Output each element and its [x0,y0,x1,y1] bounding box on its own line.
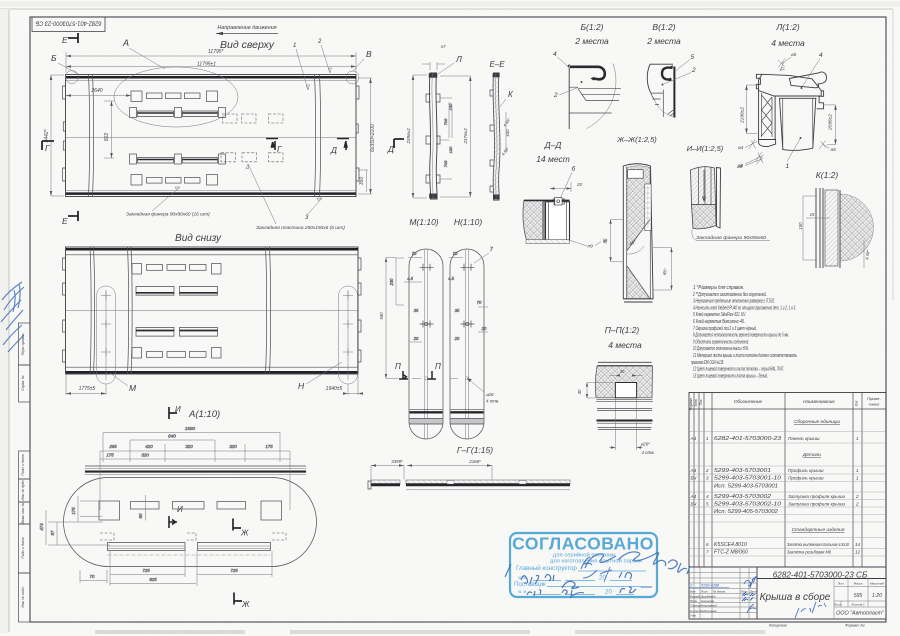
svg-text:Вид снизу: Вид снизу [175,233,222,244]
svg-text:5299-403-5703001: 5299-403-5703001 [714,468,771,474]
svg-text:595: 595 [854,593,863,599]
svg-text:60: 60 [138,513,143,518]
svg-text:6282-401-5703000-23 СБ: 6282-401-5703000-23 СБ [773,571,868,580]
svg-text:Пров.: Пров. [690,599,698,603]
svg-text:Детали: Детали [802,452,821,458]
svg-text:230: 230 [389,278,394,287]
svg-text:2: 2 [553,92,558,99]
svg-text:БЧ: БЧ [691,502,698,507]
svg-text:2 **Допускается изготовление: 2 **Допускается изготовление без скругле… [692,291,767,298]
svg-text:FTC-Z M8/060: FTC-Z M8/060 [714,550,748,556]
svg-text:2 места: 2 места [646,36,681,46]
svg-text:3 Неуказанные предельные откл: 3 Неуказанные предельные отклонения разм… [693,299,775,305]
svg-text:П: П [395,362,401,371]
svg-text:6х350=2100: 6х350=2100 [370,124,376,152]
svg-text:7: 7 [706,550,709,555]
svg-text:Подп.: Подп. [741,590,749,594]
svg-text:Формат А1: Формат А1 [845,624,865,628]
svg-text:1: 1 [856,468,859,473]
svg-text:725: 725 [230,568,238,573]
svg-text:6 Клей-герметик Виксэленс-45.: 6 Клей-герметик Виксэленс-45. [693,318,745,325]
svg-text:70: 70 [453,251,458,256]
svg-text:Поз.: Поз. [699,399,703,406]
svg-text:320: 320 [185,444,193,449]
svg-text:9 Обеспечить герметичность со: 9 Обеспечить герметичность соединений. [693,338,749,345]
svg-text:Закладная фанера 90х90х60 (16: Закладная фанера 90х90х60 (16 шт) [126,212,210,218]
svg-text:Лит.: Лит. [836,582,844,586]
svg-text:А4: А4 [690,494,697,499]
svg-text:Л(1:2): Л(1:2) [775,22,799,32]
svg-text:2: 2 [317,39,322,45]
svg-text:70: 70 [90,574,95,579]
svg-text:4 места: 4 места [771,38,805,48]
svg-text:Исп. 5299-403-5703001: Исп. 5299-403-5703001 [714,484,778,490]
svg-text:6282-401-5703000-23: 6282-401-5703000-23 [714,436,781,442]
svg-text:Утв.: Утв. [690,614,697,618]
svg-text:Заклёпка вытяжная стальная 4.8: Заклёпка вытяжная стальная 4.8х10 [787,542,850,547]
svg-text:Ж: Ж [241,600,250,609]
svg-text:Панель крыши: Панель крыши [788,436,820,441]
svg-text:Кол.: Кол. [855,400,859,406]
svg-text:Д: Д [387,144,394,154]
svg-text:20: 20 [413,336,419,341]
svg-text:Стандартные изделия: Стандартные изделия [792,527,845,533]
svg-text:А(1:10): А(1:10) [188,409,220,420]
svg-text:П: П [435,362,441,371]
svg-text:Формат: Формат [689,397,693,410]
svg-text:825: 825 [149,577,157,582]
svg-text:Подп. и дата: Подп. и дата [21,454,25,475]
svg-text:320: 320 [141,453,149,458]
svg-text:580: 580 [379,312,384,320]
svg-text:П–П(1:2): П–П(1:2) [605,325,640,335]
svg-text:1: 1 [856,436,859,441]
svg-text:5: 5 [706,502,709,507]
svg-text:Дата: Дата [749,590,758,594]
svg-text:706: 706 [443,118,448,125]
svg-text:4: 4 [819,52,823,59]
svg-text:175: 175 [71,507,76,515]
svg-text:к7: к7 [441,44,446,49]
svg-text:3399*: 3399* [391,459,403,464]
svg-text:130: 130 [448,146,453,153]
svg-text:Заглушка профиля крыши: Заглушка профиля крыши [788,502,846,507]
svg-text:2: 2 [691,67,696,74]
svg-text:Д–Д: Д–Д [544,140,562,150]
svg-text:13 Цвет лицевой поверхности л: 13 Цвет лицевой поверхности листа крыши … [693,372,768,379]
svg-text:5: 5 [691,54,695,61]
svg-text:Направление движения: Направление движения [217,25,276,31]
svg-text:Ж–Ж(1:2,5): Ж–Ж(1:2,5) [616,135,657,144]
svg-text:35: 35 [414,308,419,313]
svg-text:5 Клей-герметик SikaFlex-521: 5 Клей-герметик SikaFlex-521 UV. [693,311,746,318]
svg-text:А4: А4 [690,468,697,473]
svg-text:265: 265 [108,444,117,449]
svg-text:1: 1 [856,476,859,481]
svg-text:2: 2 [855,494,859,499]
svg-text:4 Нанесить клей Kleiberit PU4: 4 Нанесить клей Kleiberit PU40 по площад… [693,304,796,311]
svg-text:175: 175 [265,444,273,449]
svg-text:ООО "Автопласт": ООО "Автопласт" [836,611,885,617]
svg-text:7: 7 [490,247,493,253]
svg-text:⌀26: ⌀26 [486,392,494,397]
svg-text:Профиль крыши: Профиль крыши [788,476,824,481]
svg-text:5299-0288: 5299-0288 [701,584,720,588]
svg-text:Закладная пластина 250х150х6 (: Закладная пластина 250х150х6 (6 шт) [256,225,345,231]
svg-text:б: б [572,165,576,173]
svg-text:70: 70 [412,251,417,256]
svg-text:20: 20 [605,589,612,596]
svg-text:4.5: 4.5 [448,276,454,281]
svg-text:35: 35 [455,308,460,313]
svg-text:175: 175 [106,453,114,458]
svg-text:№ докум.: № докум. [713,590,726,594]
svg-text:14 мест: 14 мест [536,154,570,164]
svg-text:А4: А4 [690,436,697,441]
svg-text:706: 706 [443,160,448,167]
svg-text:4.5: 4.5 [407,276,413,281]
svg-text:« »: « » [518,589,527,596]
svg-text:474: 474 [39,523,44,531]
svg-text:2376±2: 2376±2 [463,128,468,145]
svg-text:2166*: 2166* [468,459,481,464]
svg-text:11 Материал листа крыши и лис: 11 Материал листа крыши и листа потолка … [693,353,797,359]
svg-text:12 Цвет лицевой поверхности л: 12 Цвет лицевой поверхности листа потолк… [693,366,784,373]
svg-text:2: 2 [855,502,859,507]
svg-text:Крыша в сборе: Крыша в сборе [760,591,831,603]
svg-text:840: 840 [168,434,176,439]
svg-text:420: 420 [145,444,153,449]
svg-text:для изготовления опытной парти: для изготовления опытной партии [550,558,642,565]
svg-text:2 места: 2 места [574,36,609,46]
svg-text:87: 87 [50,530,55,535]
svg-text:10 Допускается отклонение мас: 10 Допускается отклонение массы ±5%. [693,346,749,352]
svg-text:Масса: Масса [854,582,863,586]
svg-text:Насонова: Насонова [701,599,714,603]
svg-text:Наименование: Наименование [803,399,835,404]
svg-text:2: 2 [705,468,709,473]
svg-text:п9: п9 [588,244,594,250]
svg-text:Справ. №: Справ. № [21,375,25,391]
svg-text:Н: Н [298,381,305,391]
svg-text:5299-403-5703002-10: 5299-403-5703002-10 [714,502,781,508]
svg-text:8 Допускается неплоскостность: 8 Допускается неплоскостность верхней по… [693,332,789,339]
svg-text:1: 1 [786,163,790,170]
svg-text:правилам ЕЭК ООН №118.: правилам ЕЭК ООН №118. [691,360,724,366]
svg-text:Н(1:10): Н(1:10) [454,217,483,227]
svg-text:4: 4 [553,51,557,58]
svg-text:Ж: Ж [240,529,249,538]
svg-text:Приме-: Приме- [867,396,881,401]
svg-text:320: 320 [229,444,237,449]
svg-text:1:20: 1:20 [872,593,882,599]
svg-text:Зона: Зона [694,399,698,406]
svg-text:4: 4 [706,494,709,499]
svg-text:Исп. 5299-405-5703002: Исп. 5299-405-5703002 [714,509,778,515]
svg-text:Л: Л [455,54,462,64]
svg-text:чание: чание [869,402,881,407]
svg-text:Г–Г(1:15): Г–Г(1:15) [457,445,493,455]
svg-text:аб: аб [737,164,743,170]
svg-text:6282-401-5703000-23 СБ: 6282-401-5703000-23 СБ [35,19,101,25]
svg-text:Заклёпка резьбовая М8: Заклёпка резьбовая М8 [787,550,832,555]
svg-text:Е: Е [62,35,68,45]
svg-text:для серийной поставки: для серийной поставки [553,552,616,559]
svg-text:Чеботаева: Чеботаева [701,609,717,613]
svg-text:И–И(1:2,5): И–И(1:2,5) [687,144,724,153]
svg-text:K5SCE4.8010: K5SCE4.8010 [714,542,747,548]
svg-text:⌀26*: ⌀26* [641,442,651,447]
svg-text:15: 15 [810,212,815,217]
svg-text:4 отв.: 4 отв. [642,450,655,455]
svg-text:14: 14 [855,542,861,547]
svg-text:2396±2: 2396±2 [406,128,411,145]
svg-text:Насугаевой: Насугаевой [701,603,717,607]
svg-text:822: 822 [104,133,110,142]
svg-text:2640: 2640 [90,88,102,94]
svg-text:Профиль крыши: Профиль крыши [788,468,824,473]
svg-text:150: 150 [798,222,803,230]
svg-text:Б(1:2): Б(1:2) [580,22,603,32]
svg-text:Взам. инв. №: Взам. инв. № [21,502,25,523]
svg-text:Е–Е: Е–Е [489,60,505,69]
svg-text:Лист: Лист [833,603,842,607]
svg-text:2096±2: 2096±2 [828,114,834,131]
svg-text:1775±5: 1775±5 [79,386,96,392]
svg-text:30: 30 [577,389,582,394]
svg-text:Копировал: Копировал [769,624,787,628]
svg-text:12: 12 [855,550,861,555]
svg-text:11795*: 11795* [208,49,225,55]
svg-text:А: А [122,38,129,48]
svg-text:4 места: 4 места [608,340,642,350]
svg-text:3: 3 [706,476,709,481]
svg-text:1: 1 [706,436,709,441]
svg-text:И: И [177,505,183,514]
svg-text:70: 70 [477,300,482,305]
svg-text:Лист: Лист [700,590,709,594]
svg-text:Заглушка профиля крыши: Заглушка профиля крыши [788,494,846,499]
svg-text:40: 40 [620,369,625,374]
svg-text:СОГЛАСОВАНО: СОГЛАСОВАНО [512,534,654,554]
svg-text:В(1:2): В(1:2) [652,22,675,32]
svg-text:Сборочные единицы: Сборочные единицы [794,419,841,425]
svg-text:В: В [366,49,372,59]
svg-text:Изм: Изм [690,590,695,594]
svg-text:1690: 1690 [185,426,196,431]
svg-text:Инв. № дубл.: Инв. № дубл. [21,480,25,501]
svg-text:20: 20 [576,182,582,187]
svg-text:Подп. и дата: Подп. и дата [21,537,25,558]
svg-text:Обозначение: Обозначение [734,399,763,404]
svg-text:7 Окраска профилей поз.2 и 3: 7 Окраска профилей поз.2 и 3 цвет чёрный… [693,325,757,332]
svg-text:6: 6 [706,542,709,547]
svg-text:5299-403-5703002: 5299-403-5703002 [714,494,771,500]
svg-text:Масштаб: Масштаб [870,582,884,586]
svg-text:а4: а4 [738,145,744,151]
svg-text:М(1:10): М(1:10) [409,217,438,227]
svg-text:Главный конструктор: Главный конструктор [516,565,577,572]
svg-text:М: М [129,383,137,393]
svg-text:Листов 1: Листов 1 [850,603,865,607]
svg-text:К(1:2): К(1:2) [816,170,839,180]
svg-text:1 *Размеры для справок.: 1 *Размеры для справок. [693,285,744,291]
svg-text:Б: Б [51,53,57,63]
svg-text:20: 20 [454,336,460,341]
svg-text:5299-403-5703001-10: 5299-403-5703001-10 [714,476,781,482]
svg-text:а5: а5 [831,147,837,153]
svg-text:Разраб.: Разраб. [690,594,701,598]
svg-text:725: 725 [142,568,150,573]
svg-text:БЧ: БЧ [691,476,698,481]
svg-text:4 отв.: 4 отв. [486,399,499,404]
svg-text:Инв. № подл.: Инв. № подл. [21,586,25,607]
svg-text:Д: Д [330,145,337,155]
svg-text:а5: а5 [791,52,797,58]
svg-text:Е: Е [62,216,68,226]
svg-text:2196±2: 2196±2 [740,107,746,124]
svg-text:1940±5: 1940±5 [326,386,343,392]
svg-text:Дырбандт: Дырбандт [700,594,716,598]
svg-text:20: 20 [481,326,487,331]
svg-text:Вид сверху: Вид сверху [220,39,275,51]
svg-text:1: 1 [293,43,296,49]
svg-text:350: 350 [359,177,365,186]
svg-text:85: 85 [603,238,608,243]
